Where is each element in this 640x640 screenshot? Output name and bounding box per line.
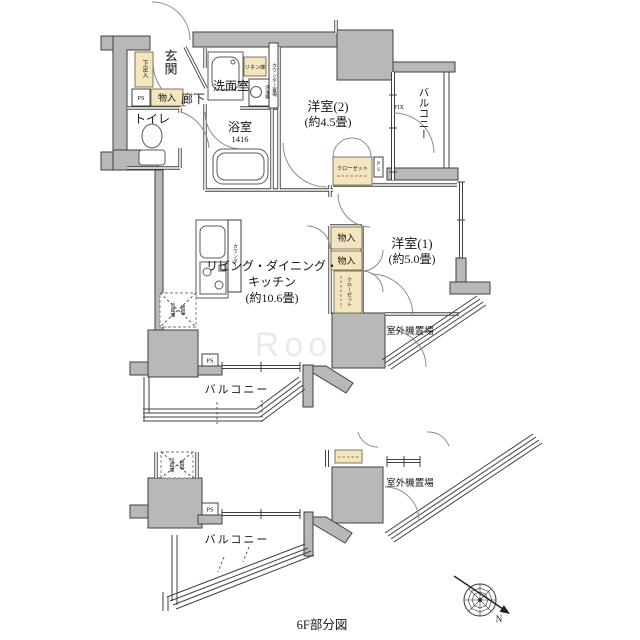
- balcony-bottom-label: バルコニー: [205, 383, 270, 396]
- bedroom2-label: 洋室(2): [307, 99, 348, 114]
- bedroom1-label: 洋室(1): [391, 236, 432, 251]
- floorplan-drawing: RooM: [0, 0, 640, 640]
- background: [0, 0, 640, 640]
- fridge-6f-label-1: 冷蔵庫: [169, 457, 175, 474]
- balcony-6f-label: バルコニー: [205, 533, 270, 546]
- floorplan-page: RooM: [0, 0, 640, 640]
- bathroom-label: 浴室: [228, 119, 252, 134]
- bedroom2-size-label: (約4.5畳): [305, 114, 352, 129]
- fix-window-label: FIX: [394, 105, 404, 111]
- bathroom-size-label: 1416: [232, 134, 249, 144]
- entrance-label: 玄関: [163, 49, 178, 76]
- ldk-label-1: リビング・ダイニング・: [206, 258, 338, 273]
- outdoor-unit-6f-label: 室外機置場: [386, 477, 434, 489]
- bedroom2-closet-label: クローゼット: [337, 164, 368, 172]
- bathtub-fixture: [213, 149, 268, 184]
- compass-center: [478, 598, 482, 602]
- ps3-label: PS: [206, 358, 214, 365]
- hallway-label: 廊下: [181, 91, 205, 106]
- bedroom1-closet-label: クローゼット: [346, 277, 352, 307]
- counter-kitchen-label: カウンター: [232, 244, 238, 269]
- compass-north-label: N: [496, 614, 503, 624]
- fridge-label-2: 置場: [180, 305, 186, 316]
- outdoor-unit-label: 室外機置場: [386, 325, 434, 337]
- fridge-6f-label-2: 置場: [179, 460, 185, 471]
- balcony-right-label: バルコニー: [418, 87, 429, 140]
- toilet-label: トイレ: [134, 112, 170, 126]
- storage2-label: 物入: [337, 255, 355, 266]
- counter-washroom-label: カウンター: [271, 63, 277, 88]
- linen-label: リネン庫: [245, 63, 266, 71]
- ldk-label-3: (約10.6畳): [246, 290, 299, 305]
- ldk-label-2: キッチン: [248, 275, 296, 289]
- bedroom1-size-label: (約5.0畳): [389, 251, 436, 266]
- ps-6f-label: PS: [206, 507, 214, 514]
- entrance-closet-label: 物入: [158, 92, 176, 103]
- ps2-label: PS: [376, 161, 382, 173]
- refrigerator-area: [160, 293, 196, 327]
- washer-label-1: 洗濯機: [264, 84, 269, 101]
- shoe-box-label: 下足入: [141, 60, 148, 78]
- caption-6f: 6F部分図: [297, 617, 348, 632]
- storage1-label: 物入: [337, 232, 355, 243]
- washer-label-2: 置場: [271, 87, 276, 98]
- fridge-label-1: 冷蔵庫: [170, 302, 176, 319]
- washroom-label: 洗面室: [213, 78, 249, 93]
- refrigerator-area-6f: [161, 452, 193, 478]
- ps1-label: PS: [137, 95, 145, 102]
